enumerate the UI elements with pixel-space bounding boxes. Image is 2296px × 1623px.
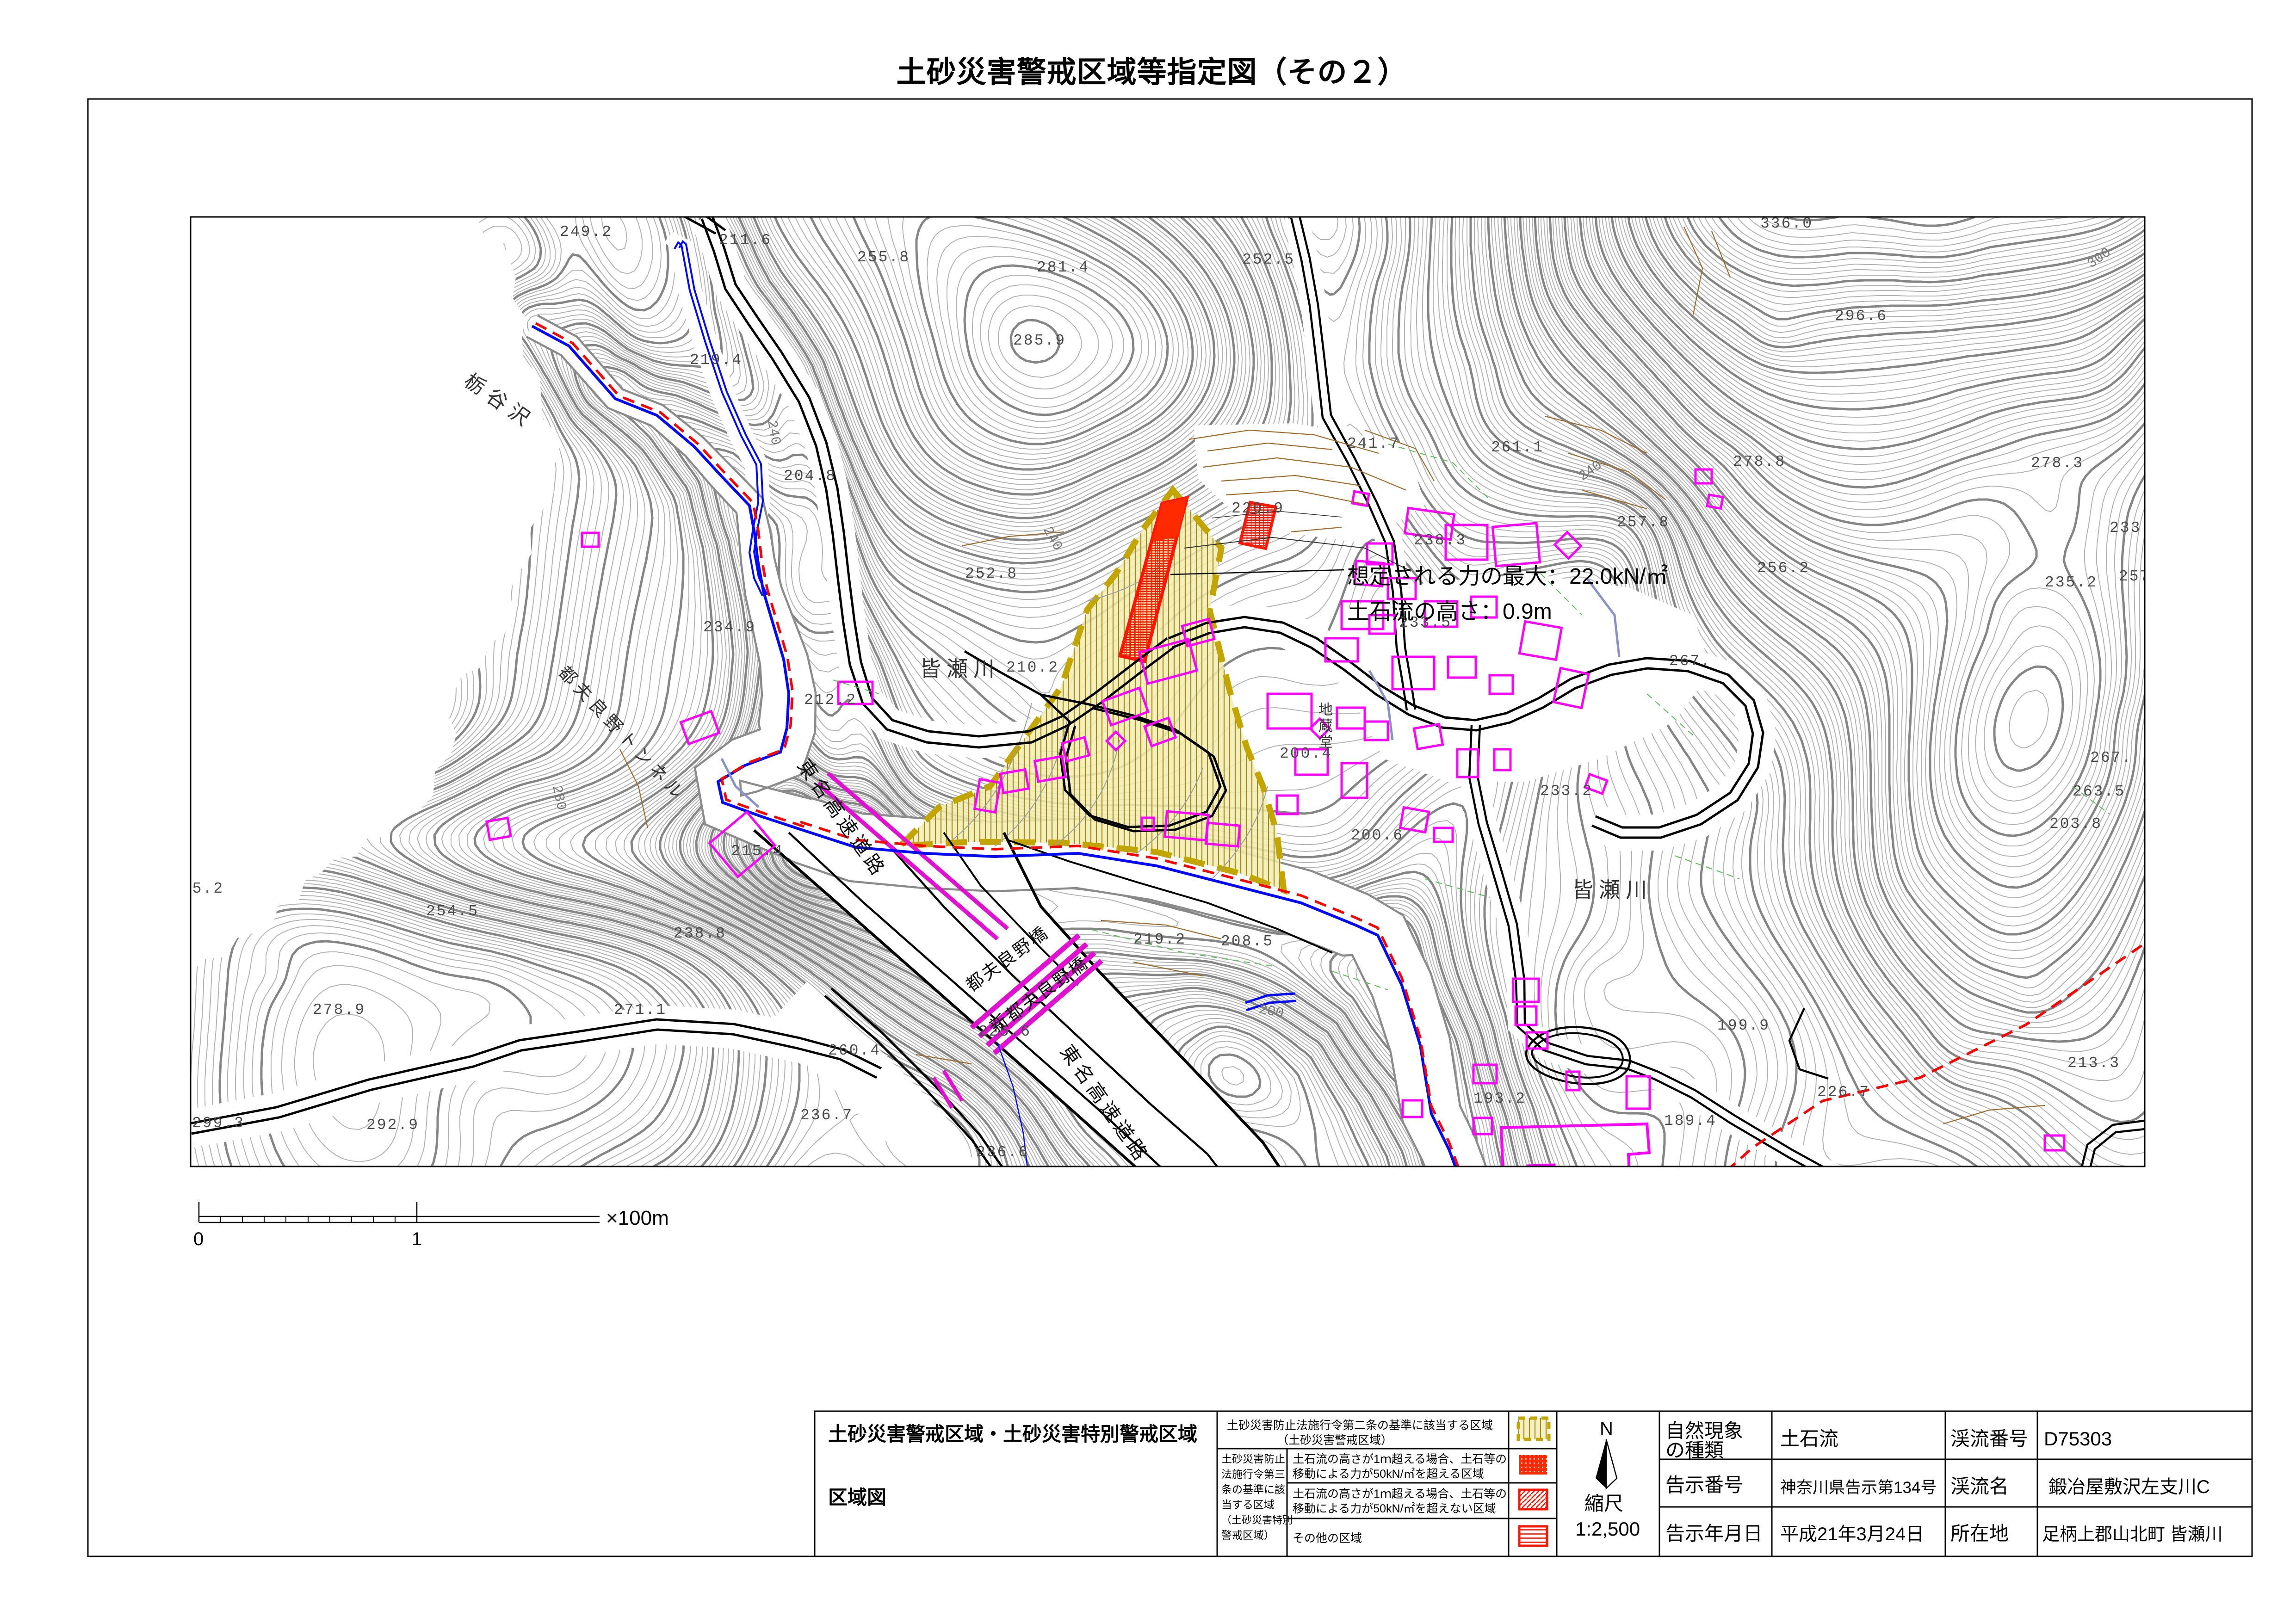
svg-text:271.1: 271.1 <box>614 1001 667 1018</box>
svg-text:堂: 堂 <box>1318 734 1333 750</box>
svg-text:D75303: D75303 <box>2044 1428 2112 1450</box>
svg-text:267.: 267. <box>1669 653 1711 670</box>
svg-text:皆瀬川: 皆瀬川 <box>920 657 1000 681</box>
svg-text:236.7: 236.7 <box>800 1107 853 1124</box>
svg-text:292.9: 292.9 <box>366 1117 419 1134</box>
svg-text:渓流名: 渓流名 <box>1950 1475 2009 1497</box>
svg-text:260.4: 260.4 <box>828 1042 881 1059</box>
svg-text:縮尺: 縮尺 <box>1584 1493 1623 1514</box>
svg-text:261.1: 261.1 <box>1491 439 1544 456</box>
svg-text:254.5: 254.5 <box>426 903 479 920</box>
svg-text:皆瀬川: 皆瀬川 <box>1572 878 1652 902</box>
svg-text:263.5: 263.5 <box>2073 783 2125 800</box>
svg-text:想定される力の最大：22.0kN/㎡: 想定される力の最大：22.0kN/㎡ <box>1347 564 1668 589</box>
svg-text:199.9: 199.9 <box>1717 1017 1770 1034</box>
svg-text:当する区域: 当する区域 <box>1221 1499 1275 1511</box>
svg-text:219.2: 219.2 <box>1133 931 1186 948</box>
svg-text:257.8: 257.8 <box>1617 514 1670 531</box>
svg-text:鍛冶屋敷沢左支川C: 鍛冶屋敷沢左支川C <box>2048 1477 2210 1497</box>
svg-text:土石流の高さが1ｍ超える場合、土石等の: 土石流の高さが1ｍ超える場合、土石等の <box>1293 1453 1507 1466</box>
svg-text:215.4: 215.4 <box>731 843 784 860</box>
svg-text:255.8: 255.8 <box>857 249 910 266</box>
svg-text:土石流: 土石流 <box>1780 1428 1838 1450</box>
svg-text:212.2: 212.2 <box>804 691 857 709</box>
svg-text:自然現象: 自然現象 <box>1665 1420 1743 1442</box>
svg-text:警戒区域）: 警戒区域） <box>1221 1529 1275 1541</box>
svg-text:238.3: 238.3 <box>1414 532 1467 549</box>
svg-text:平成21年3月24日: 平成21年3月24日 <box>1780 1524 1924 1544</box>
svg-text:告示番号: 告示番号 <box>1665 1474 1743 1496</box>
svg-text:249.2: 249.2 <box>560 223 613 241</box>
svg-text:252.5: 252.5 <box>1242 251 1295 268</box>
svg-text:252.8: 252.8 <box>965 565 1018 582</box>
svg-text:278.8: 278.8 <box>1733 453 1786 470</box>
svg-text:1:2,500: 1:2,500 <box>1575 1518 1640 1540</box>
svg-text:220.9: 220.9 <box>1232 500 1284 517</box>
svg-text:渓流番号: 渓流番号 <box>1950 1428 2028 1450</box>
svg-text:238.8: 238.8 <box>674 925 726 942</box>
svg-text:211.6: 211.6 <box>719 232 772 249</box>
svg-text:256.2: 256.2 <box>1757 560 1810 577</box>
svg-text:299.3: 299.3 <box>192 1115 245 1132</box>
svg-text:土砂災害警戒区域等指定図（その２）: 土砂災害警戒区域等指定図（その２） <box>897 56 1408 89</box>
svg-text:地: 地 <box>1318 702 1333 718</box>
svg-text:278.3: 278.3 <box>2031 455 2084 472</box>
svg-text:土石流の高さ：0.9m: 土石流の高さ：0.9m <box>1347 599 1552 624</box>
svg-text:336.0: 336.0 <box>1760 215 1813 232</box>
svg-text:N: N <box>1600 1419 1613 1439</box>
svg-text:285.9: 285.9 <box>1013 332 1066 349</box>
svg-text:0: 0 <box>193 1229 204 1249</box>
svg-text:281.4: 281.4 <box>1037 259 1089 276</box>
svg-text:213.3: 213.3 <box>2067 1055 2120 1072</box>
svg-text:土砂災害防止: 土砂災害防止 <box>1221 1453 1285 1465</box>
svg-text:236.6: 236.6 <box>976 1144 1029 1161</box>
svg-text:189.4: 189.4 <box>1664 1112 1717 1129</box>
svg-text:226.7: 226.7 <box>1817 1084 1870 1101</box>
svg-text:神奈川県告示第134号: 神奈川県告示第134号 <box>1780 1479 1937 1497</box>
svg-text:足柄上郡山北町 皆瀬川: 足柄上郡山北町 皆瀬川 <box>2042 1525 2223 1544</box>
svg-text:1: 1 <box>412 1229 422 1249</box>
svg-text:241.7: 241.7 <box>1347 435 1400 452</box>
svg-text:土砂災害警戒区域・土砂災害特別警戒区域: 土砂災害警戒区域・土砂災害特別警戒区域 <box>828 1423 1197 1445</box>
svg-text:296.6: 296.6 <box>1835 308 1888 325</box>
svg-text:219.4: 219.4 <box>690 352 743 369</box>
svg-text:234.9: 234.9 <box>703 619 756 636</box>
svg-text:の種類: の種類 <box>1665 1439 1724 1461</box>
svg-text:235.2: 235.2 <box>2045 574 2098 591</box>
svg-text:200.6: 200.6 <box>1351 827 1404 844</box>
svg-text:移動による力が50kN/㎡を超える区域: 移動による力が50kN/㎡を超える区域 <box>1293 1468 1484 1481</box>
svg-text:移動による力が50kN/㎡を超えない区域: 移動による力が50kN/㎡を超えない区域 <box>1293 1502 1496 1515</box>
svg-text:その他の区域: その他の区域 <box>1293 1532 1362 1545</box>
svg-text:条の基準に該: 条の基準に該 <box>1221 1483 1285 1495</box>
svg-text:所在地: 所在地 <box>1950 1523 2009 1544</box>
svg-text:210.2: 210.2 <box>1006 659 1059 676</box>
svg-text:203.8: 203.8 <box>2049 815 2102 833</box>
svg-text:告示年月日: 告示年月日 <box>1665 1523 1763 1544</box>
svg-text:204.8: 204.8 <box>784 468 836 485</box>
svg-text:×100m: ×100m <box>606 1207 669 1229</box>
svg-text:（土砂災害警戒区域）: （土砂災害警戒区域） <box>1277 1434 1392 1447</box>
svg-text:土砂災害防止法施行令第二条の基準に該当する区域: 土砂災害防止法施行令第二条の基準に該当する区域 <box>1227 1419 1493 1432</box>
svg-text:法施行令第三: 法施行令第三 <box>1221 1468 1285 1480</box>
svg-text:193.2: 193.2 <box>1473 1090 1526 1107</box>
svg-text:区域図: 区域図 <box>828 1487 886 1508</box>
svg-text:土石流の高さが1ｍ超える場合、土石等の: 土石流の高さが1ｍ超える場合、土石等の <box>1293 1487 1507 1500</box>
svg-text:208.5: 208.5 <box>1221 933 1274 950</box>
svg-text:蔵: 蔵 <box>1318 718 1333 734</box>
svg-text:233.2: 233.2 <box>1540 783 1593 800</box>
svg-text:（土砂災害特別: （土砂災害特別 <box>1221 1514 1293 1526</box>
svg-text:267.: 267. <box>2090 749 2132 766</box>
svg-text:278.9: 278.9 <box>313 1001 365 1018</box>
